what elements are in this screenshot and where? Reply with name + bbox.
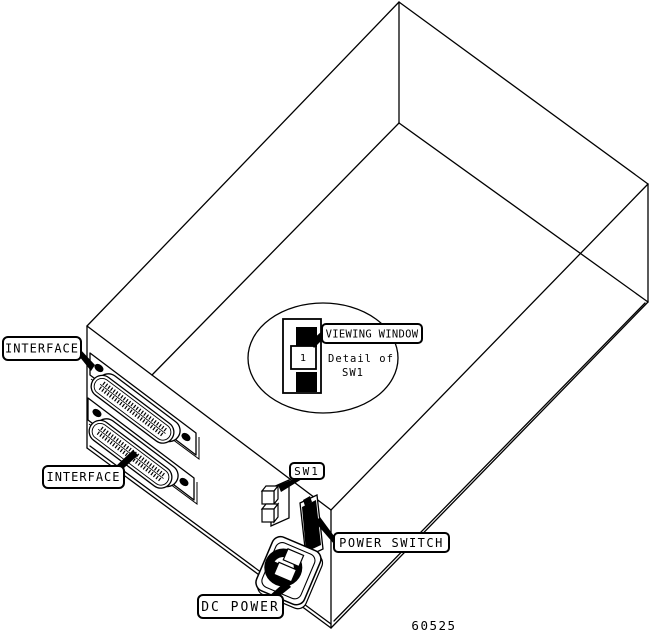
edge-top-left (87, 2, 399, 326)
figure-number: 60525 (411, 618, 456, 633)
callout-interface-bottom-label: INTERFACE (46, 470, 120, 484)
callout-power-switch-label: POWER SWITCH (339, 536, 444, 550)
callout-dc-power-label: DC POWER (201, 600, 280, 615)
detail-caption-line2: SW1 (342, 367, 364, 379)
callout-sw1: SW1 (290, 463, 324, 479)
sw1-button-upper (262, 486, 278, 504)
callout-viewing-window-label: VIEWING WINDOW (326, 329, 419, 341)
callout-power-switch: POWER SWITCH (334, 533, 449, 552)
sw1-button-lower (262, 504, 278, 522)
detail-inset: 1 Detail of SW1 (248, 303, 398, 413)
callout-interface-bottom: INTERFACE (43, 466, 124, 488)
callout-interface-top: INTERFACE (3, 337, 81, 360)
viewing-window-digit: 1 (300, 353, 306, 364)
device-isometric-drawing: 1 Detail of SW1 (0, 0, 649, 640)
technical-diagram-page: 1 Detail of SW1 (0, 0, 649, 640)
callout-interface-top-label: INTERFACE (5, 342, 79, 356)
callout-viewing-window: VIEWING WINDOW (322, 324, 422, 343)
switch-block-lower (296, 372, 317, 392)
callout-sw1-label: SW1 (294, 465, 320, 478)
edge-top-right (399, 2, 648, 184)
edge-inner-right (399, 123, 648, 302)
detail-caption-line1: Detail of (328, 353, 394, 365)
callout-dc-power: DC POWER (198, 595, 283, 618)
